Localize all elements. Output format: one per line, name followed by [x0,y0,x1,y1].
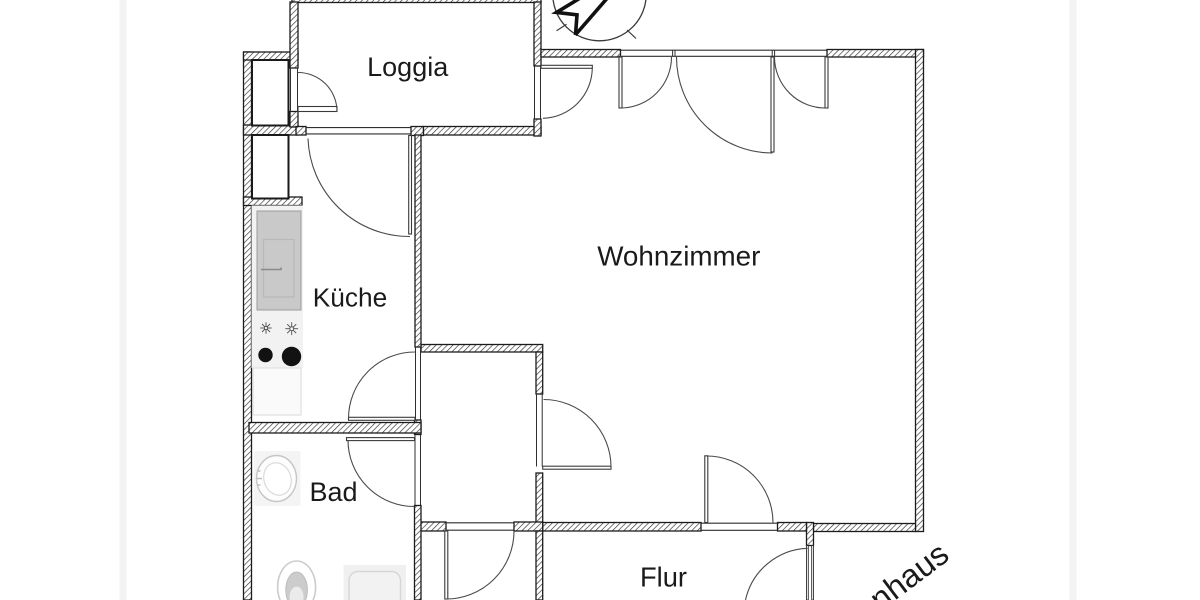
svg-text:Küche: Küche [313,282,388,312]
svg-text:Bad: Bad [309,477,357,507]
svg-text:Flur: Flur [640,562,687,593]
svg-text:Wohnzimmer: Wohnzimmer [597,241,760,272]
svg-text:Loggia: Loggia [367,52,449,82]
